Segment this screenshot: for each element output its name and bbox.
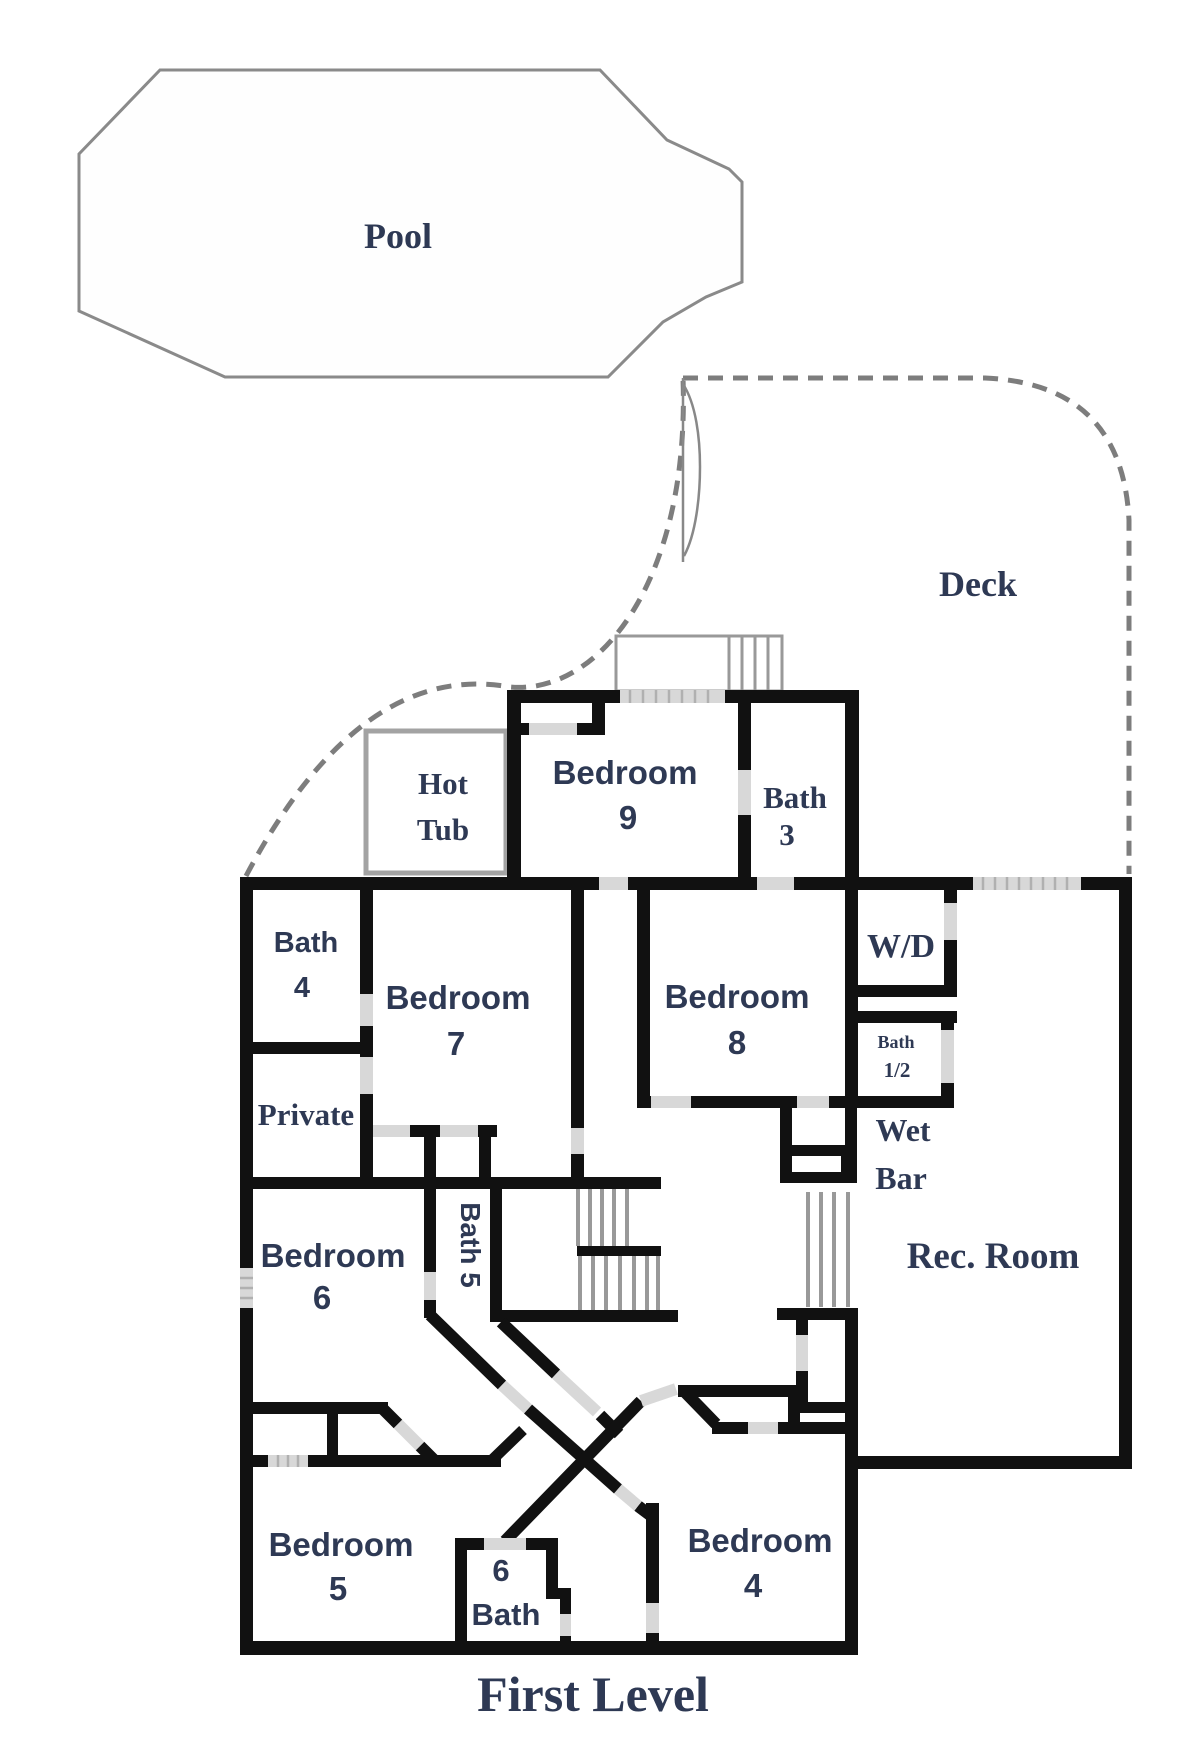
svg-text:Bedroom: Bedroom: [665, 978, 810, 1015]
svg-text:Private: Private: [258, 1097, 354, 1132]
svg-text:Bedroom: Bedroom: [269, 1526, 414, 1563]
svg-text:Bedroom: Bedroom: [553, 754, 698, 791]
svg-text:9: 9: [619, 799, 637, 836]
svg-text:Bedroom: Bedroom: [386, 979, 531, 1016]
svg-text:Bath: Bath: [472, 1597, 541, 1632]
svg-text:6: 6: [492, 1553, 509, 1588]
svg-text:Bath: Bath: [877, 1032, 914, 1052]
svg-text:4: 4: [744, 1567, 763, 1604]
svg-text:W/D: W/D: [867, 928, 935, 965]
svg-text:7: 7: [447, 1025, 465, 1062]
svg-text:Wet: Wet: [875, 1112, 930, 1148]
svg-text:Bedroom: Bedroom: [688, 1522, 833, 1559]
svg-text:5: 5: [329, 1570, 347, 1607]
svg-text:1/2: 1/2: [884, 1058, 911, 1082]
svg-text:Pool: Pool: [364, 216, 432, 256]
svg-text:8: 8: [728, 1024, 746, 1061]
svg-text:Bath: Bath: [274, 927, 338, 959]
svg-text:Bath: Bath: [763, 780, 827, 815]
svg-text:4: 4: [294, 972, 310, 1004]
svg-text:Tub: Tub: [417, 812, 469, 847]
svg-text:Bedroom: Bedroom: [261, 1237, 406, 1274]
svg-text:Deck: Deck: [939, 564, 1017, 604]
svg-text:Hot: Hot: [418, 766, 469, 801]
svg-text:Bath 5: Bath 5: [455, 1202, 486, 1288]
svg-text:6: 6: [313, 1279, 331, 1316]
svg-text:Bar: Bar: [875, 1160, 927, 1196]
svg-text:Rec. Room: Rec. Room: [907, 1236, 1080, 1277]
svg-text:3: 3: [779, 817, 795, 852]
svg-text:First Level: First Level: [477, 1666, 709, 1722]
